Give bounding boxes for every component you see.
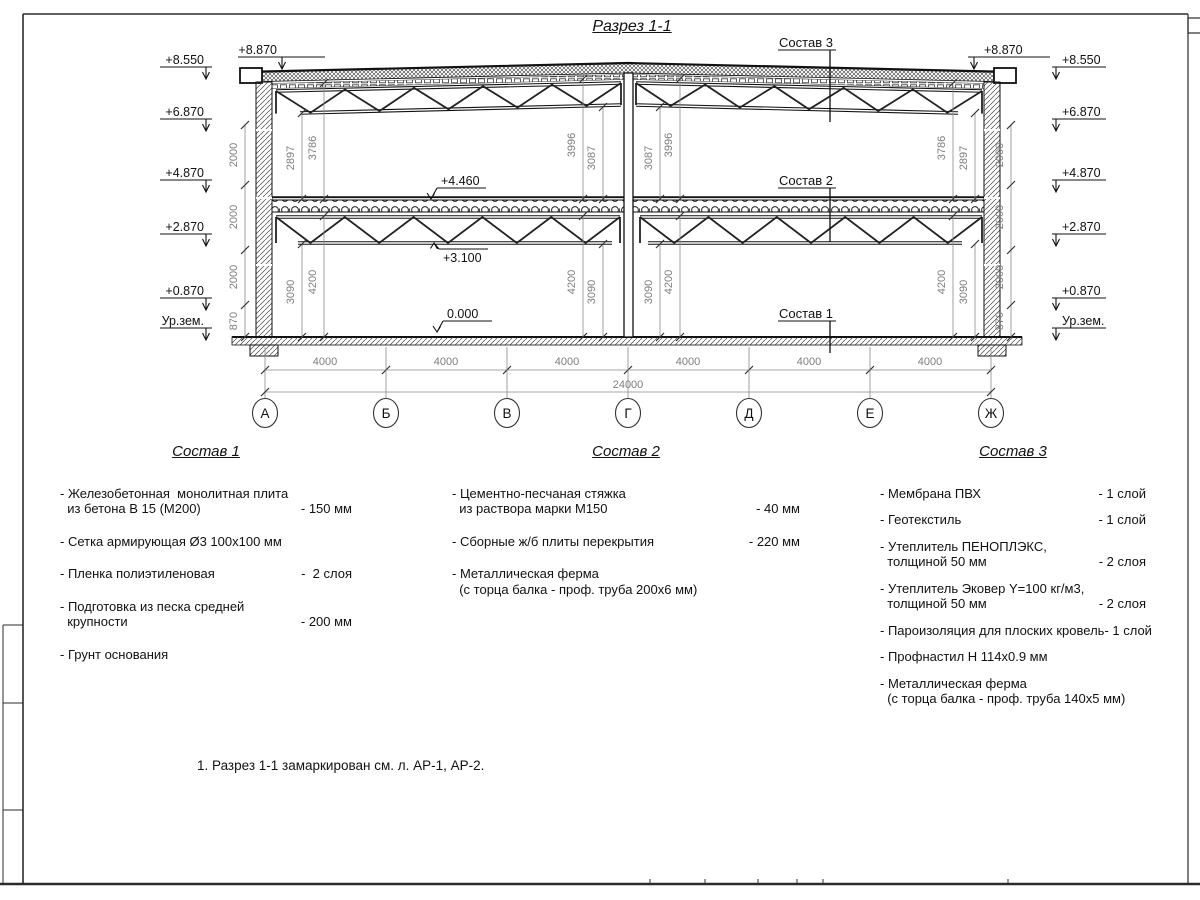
dim-label: 3786 xyxy=(936,136,948,160)
legend-item: - Сетка армирующая Ø3 100x100 мм xyxy=(60,534,352,550)
dim-label: 2897 xyxy=(958,146,970,170)
layer-name: - Подготовка из песка средней крупности xyxy=(60,599,301,630)
dim-label: 3090 xyxy=(643,280,655,304)
elevation-marks-right: +8.550 +6.870 +4.870 +2.870 +0.870 Ур.зе… xyxy=(1052,53,1106,340)
layer-value: - 150 мм xyxy=(301,501,352,517)
legend-item: - Грунт основания xyxy=(60,647,352,663)
bottom-dimensions: 4000 4000 4000 4000 4000 4000 24000 xyxy=(313,356,942,391)
dim-label: 4200 xyxy=(566,270,578,294)
legend-item: - Профнастил Н 114x0.9 мм xyxy=(880,649,1146,665)
legend-item: - Мембрана ПВХ- 1 слой xyxy=(880,486,1146,502)
elev-label: +2.870 xyxy=(165,220,204,234)
layer-value: - 200 мм xyxy=(301,614,352,630)
legend-title: Состав 3 xyxy=(880,444,1146,460)
legend-item: - Сборные ж/б плиты перекрытия- 220 мм xyxy=(452,534,800,550)
ground-level-label: Ур.зем. xyxy=(1062,314,1104,328)
dim-label: 2000 xyxy=(228,143,240,167)
legend-sostav-1: Состав 1 - Железобетонная монолитная пли… xyxy=(60,444,352,679)
legend-item: - Пароизоляция для плоских кровель- 1 сл… xyxy=(880,623,1146,639)
elev-label: +0.870 xyxy=(165,284,204,298)
layer-name: - Мембрана ПВХ xyxy=(880,486,1098,502)
dim-label: 3996 xyxy=(566,133,578,157)
layer-name: - Профнастил Н 114x0.9 мм xyxy=(880,649,1146,665)
dim-label: 4000 xyxy=(918,356,942,368)
legend-item: - Утеплитель Эковер Y=100 кг/м3, толщино… xyxy=(880,581,1146,612)
wall-left xyxy=(256,82,272,337)
layer-name: - Грунт основания xyxy=(60,647,352,663)
dim-label: 2000 xyxy=(994,143,1006,167)
dim-label: 3090 xyxy=(285,280,297,304)
dim-label: 4200 xyxy=(663,270,675,294)
elev-label: +4.870 xyxy=(1062,166,1101,180)
foundation-left xyxy=(250,345,278,356)
axis-letters: А Б В Г Д Е Ж xyxy=(260,406,997,421)
layer-name: - Утеплитель Эковер Y=100 кг/м3, толщино… xyxy=(880,581,1099,612)
layer-value: - 2 слоя xyxy=(301,566,352,582)
layer-value: - 1 слой xyxy=(1104,623,1152,639)
elev-label: +8.870 xyxy=(238,43,277,57)
legend-item: - Утеплитель ПЕНОПЛЭКС, толщиной 50 мм- … xyxy=(880,539,1146,570)
dim-label: 4200 xyxy=(936,270,948,294)
layer-value: - 1 слой xyxy=(1098,512,1146,528)
axis-label: Е xyxy=(865,406,874,421)
legend-item: - Металлическая ферма (с торца балка - п… xyxy=(452,566,800,597)
dim-label: 3090 xyxy=(958,280,970,304)
axis-label: А xyxy=(260,406,269,421)
axis-label: Б xyxy=(382,406,391,421)
layer-value: - 220 мм xyxy=(749,534,800,550)
legend-sostav-2: Состав 2 - Цементно-песчаная стяжка из р… xyxy=(452,444,800,614)
layer-name: - Металлическая ферма (с торца балка - п… xyxy=(452,566,800,597)
legend-title: Состав 1 xyxy=(60,444,352,460)
dim-label: 2897 xyxy=(285,146,297,170)
dim-label: 4000 xyxy=(555,356,579,368)
axis-label: Ж xyxy=(985,406,998,421)
elev-label: +6.870 xyxy=(165,105,204,119)
elev-label: +3.100 xyxy=(443,251,482,265)
dim-label: 3087 xyxy=(586,146,598,170)
dim-label: 4000 xyxy=(797,356,821,368)
legend-item: - Пленка полиэтиленовая- 2 слоя xyxy=(60,566,352,582)
dim-label: 870 xyxy=(228,312,240,330)
layer-name: - Сборные ж/б плиты перекрытия xyxy=(452,534,749,550)
dim-label: 870 xyxy=(994,312,1006,330)
dim-label: 3087 xyxy=(643,146,655,170)
sheet-note: 1. Разрез 1-1 замаркирован см. л. АР-1, … xyxy=(197,758,484,773)
layer-name: - Пароизоляция для плоских кровель xyxy=(880,623,1104,639)
axis-label: Г xyxy=(624,406,632,421)
legend-item: - Железобетонная монолитная плита из бет… xyxy=(60,486,352,517)
layer-name: - Металлическая ферма (с торца балка - п… xyxy=(880,676,1146,707)
dim-label: 4200 xyxy=(307,270,319,294)
dim-label: 4000 xyxy=(676,356,700,368)
drawing-sheet: +8.550 +6.870 +4.870 +2.870 +0.870 Ур.зе… xyxy=(0,0,1200,900)
roof-edge-block-right xyxy=(994,68,1016,83)
layer-name: - Пленка полиэтиленовая xyxy=(60,566,301,582)
legend-item: - Металлическая ферма (с торца балка - п… xyxy=(880,676,1146,707)
layer-name: - Утеплитель ПЕНОПЛЭКС, толщиной 50 мм xyxy=(880,539,1099,570)
roof-edge-block-left xyxy=(240,68,262,83)
layer-value: - 2 слоя xyxy=(1099,596,1146,612)
legend-sostav-3: Состав 3 - Мембрана ПВХ- 1 слой - Геотек… xyxy=(880,444,1146,718)
layer-value: - 40 мм xyxy=(756,501,800,517)
layer-value: - 2 слоя xyxy=(1099,554,1146,570)
drawing-title: Разрез 1-1 xyxy=(592,18,671,36)
elev-label: 0.000 xyxy=(447,307,478,321)
layer-name: - Цементно-песчаная стяжка из раствора м… xyxy=(452,486,756,517)
leader-label-sostav1: Состав 1 xyxy=(779,306,833,321)
dim-label: 3786 xyxy=(307,136,319,160)
layer-name: - Сетка армирующая Ø3 100x100 мм xyxy=(60,534,352,550)
building-structure xyxy=(232,63,1022,356)
axis-label: Д xyxy=(744,406,753,421)
foundation-right xyxy=(978,345,1006,356)
layer-value: - 1 слой xyxy=(1098,486,1146,502)
elev-label: +6.870 xyxy=(1062,105,1101,119)
dim-label: 4000 xyxy=(313,356,337,368)
legend-title: Состав 2 xyxy=(452,444,800,460)
dim-label: 2000 xyxy=(994,205,1006,229)
total-dim-label: 24000 xyxy=(613,379,644,391)
legend-item: - Геотекстиль- 1 слой xyxy=(880,512,1146,528)
center-column xyxy=(624,73,633,337)
layer-name: - Геотекстиль xyxy=(880,512,1098,528)
elev-label: +8.870 xyxy=(984,43,1023,57)
legend-item: - Подготовка из песка средней крупности-… xyxy=(60,599,352,630)
leader-label-sostav3: Состав 3 xyxy=(779,35,833,50)
dim-label: 3996 xyxy=(663,133,675,157)
dim-label: 3090 xyxy=(586,280,598,304)
elev-label: +8.550 xyxy=(165,53,204,67)
dim-label: 2000 xyxy=(228,265,240,289)
legend-item: - Цементно-песчаная стяжка из раствора м… xyxy=(452,486,800,517)
elev-label: +0.870 xyxy=(1062,284,1101,298)
elev-label: +4.870 xyxy=(165,166,204,180)
layer-name: - Железобетонная монолитная плита из бет… xyxy=(60,486,301,517)
leader-label-sostav2: Состав 2 xyxy=(779,173,833,188)
dim-label: 4000 xyxy=(434,356,458,368)
axis-label: В xyxy=(502,406,511,421)
elevation-marks-left: +8.550 +6.870 +4.870 +2.870 +0.870 Ур.зе… xyxy=(160,53,212,340)
ground-level-label: Ур.зем. xyxy=(162,314,204,328)
ground-slab xyxy=(232,337,1022,345)
dim-label: 2000 xyxy=(994,265,1006,289)
elev-label: +2.870 xyxy=(1062,220,1101,234)
elev-label: +8.550 xyxy=(1062,53,1101,67)
elev-label: +4.460 xyxy=(441,174,480,188)
dim-label: 2000 xyxy=(228,205,240,229)
